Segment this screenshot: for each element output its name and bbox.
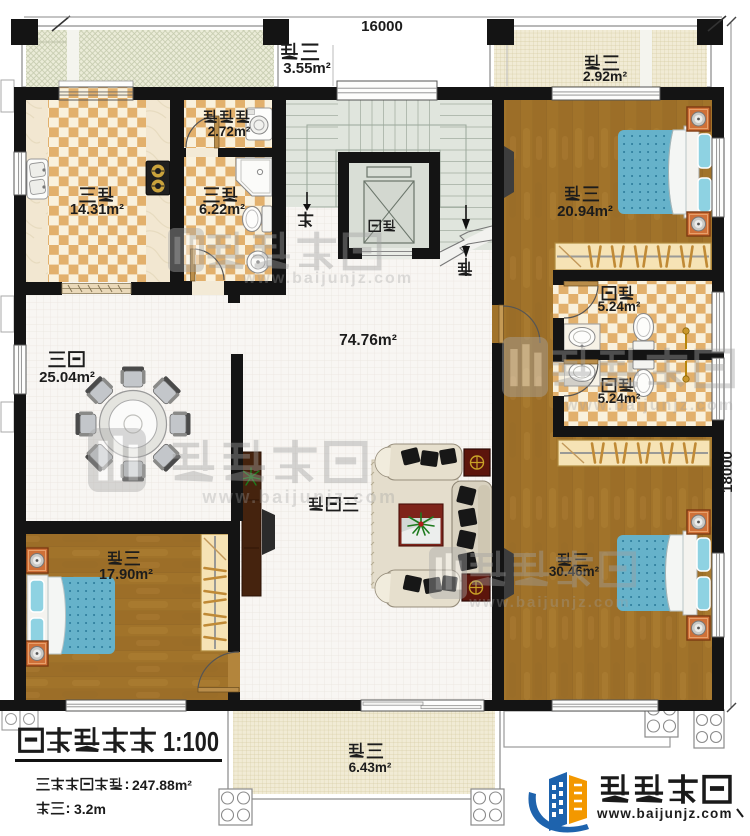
svg-text:2.72m²: 2.72m²	[208, 124, 251, 139]
svg-text:www.baijunjz.com: www.baijunjz.com	[468, 594, 630, 611]
svg-text:20.94m²: 20.94m²	[557, 203, 613, 220]
svg-text:1:100: 1:100	[163, 726, 219, 757]
svg-text:14.31m²: 14.31m²	[70, 202, 124, 218]
svg-text:247.88m²: 247.88m²	[132, 777, 192, 793]
svg-text:6.22m²: 6.22m²	[199, 202, 245, 218]
svg-text:2.92m²: 2.92m²	[583, 68, 628, 84]
svg-text:3.2m: 3.2m	[74, 801, 106, 817]
svg-text::: :	[125, 776, 130, 793]
svg-text:www.baijunjz.com: www.baijunjz.com	[201, 487, 397, 507]
svg-text:5.24m²: 5.24m²	[598, 299, 641, 314]
svg-text:6.43m²: 6.43m²	[349, 760, 392, 775]
svg-text::: :	[66, 800, 71, 817]
svg-text:17.90m²: 17.90m²	[99, 567, 153, 583]
svg-text:74.76m²: 74.76m²	[339, 332, 397, 349]
svg-text:www.baijunjz.com: www.baijunjz.com	[564, 397, 735, 414]
svg-text:3.55m²: 3.55m²	[283, 60, 331, 77]
svg-text:www.baijunjz.com: www.baijunjz.com	[596, 806, 733, 821]
svg-text:16000: 16000	[361, 18, 403, 35]
svg-text:www.baijunjz.com: www.baijunjz.com	[242, 270, 413, 287]
svg-text:18000: 18000	[719, 451, 736, 493]
svg-text:25.04m²: 25.04m²	[39, 369, 95, 386]
